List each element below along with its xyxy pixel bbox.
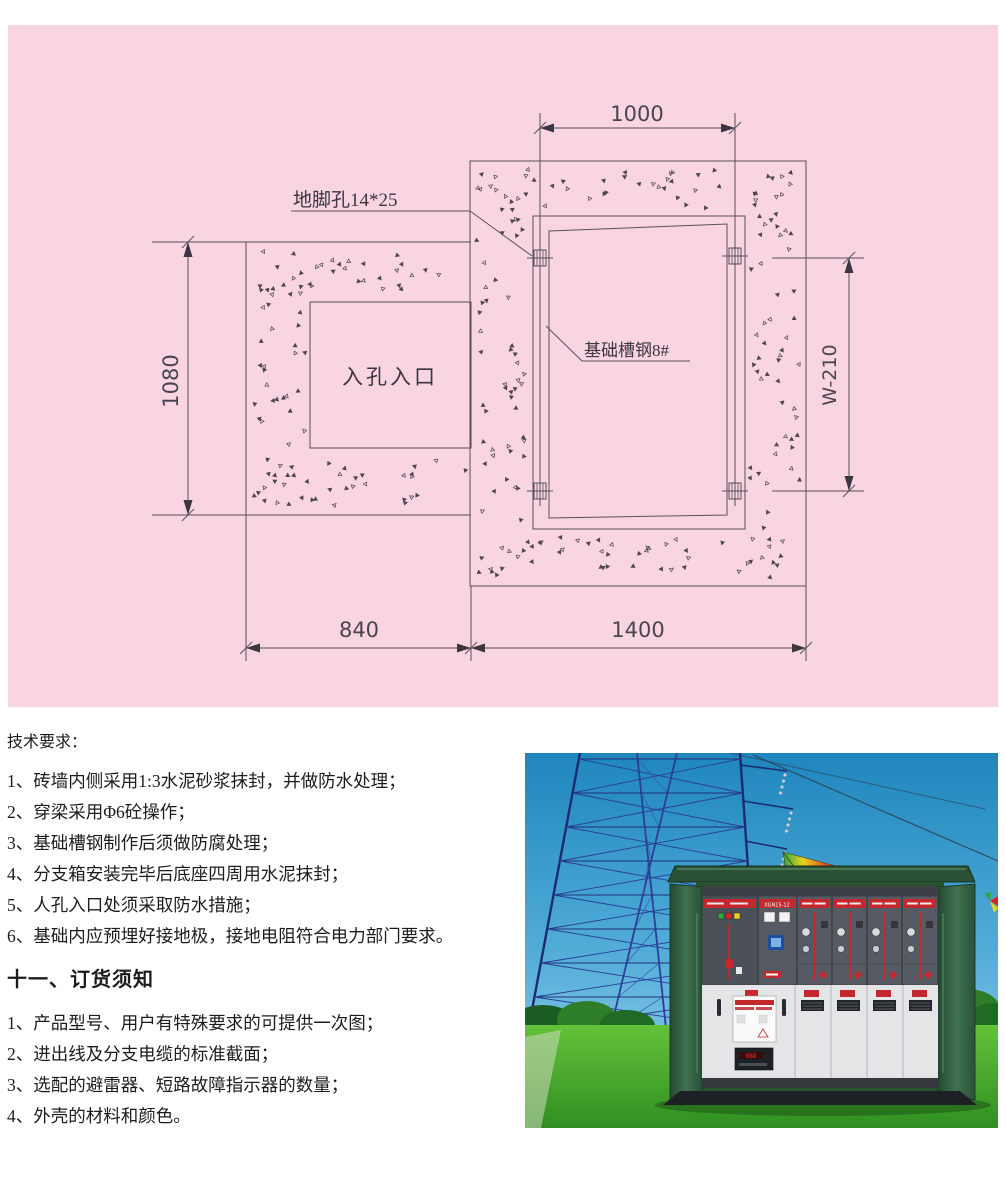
dim-840-label: 840 — [339, 618, 379, 642]
arrowhead — [845, 476, 854, 491]
pit-outline — [533, 216, 745, 529]
tech-requirements-section: 技术要求： 1、砖墙内侧采用1:3水泥砂浆抹封，并做防水处理； 2、穿梁采用Φ6… — [7, 728, 512, 952]
cabinet-model-text: XGN15-12 — [764, 903, 790, 909]
list-item: 1、产品型号、用户有特殊要求的可提供一次图； — [7, 1008, 512, 1039]
svg-text:888: 888 — [746, 1053, 757, 1060]
arrowhead — [845, 258, 854, 273]
list-item: 2、穿梁采用Φ6砼操作； — [7, 797, 512, 828]
foundation-plan-svg: 1000 地脚孔14*25 1080 入孔入口 基础槽钢8# — [8, 25, 998, 707]
list-item: 4、分支箱安装完毕后底座四周用水泥抹封； — [7, 859, 512, 890]
arrowhead — [457, 644, 471, 653]
manhole-label: 入孔入口 — [342, 365, 438, 389]
ordering-notice-title: 十一、订货须知 — [7, 963, 512, 992]
arrowhead — [792, 644, 806, 653]
arrowhead — [721, 124, 735, 133]
anchor-bolts — [527, 241, 748, 506]
ordering-notice-list: 1、产品型号、用户有特殊要求的可提供一次图； 2、进出线及分支电缆的标准截面； … — [7, 1008, 512, 1132]
arrowhead — [246, 644, 260, 653]
list-item: 3、选配的避雷器、短路故障指示器的数量； — [7, 1070, 512, 1101]
switchgear-bays: 888 — [702, 896, 938, 1088]
catalog-page: 1000 地脚孔14*25 1080 入孔入口 基础槽钢8# — [0, 0, 1006, 1181]
arrowhead — [540, 124, 554, 133]
arrowhead — [471, 644, 485, 653]
list-item: 4、外壳的材料和颜色。 — [7, 1101, 512, 1132]
leader-diagonal — [470, 211, 532, 256]
channel-steel-frame — [549, 224, 727, 518]
tech-requirements-title: 技术要求： — [7, 728, 512, 752]
channel-steel-label: 基础槽钢8# — [584, 341, 669, 360]
cabinet-sill — [663, 1091, 977, 1105]
arrowhead — [184, 242, 193, 257]
concrete-stipple-texture — [252, 168, 801, 579]
leader-diagonal — [546, 326, 582, 361]
photo-svg: 888 XGN15-12 — [525, 753, 998, 1128]
cabinet-right-door — [938, 884, 975, 1100]
distribution-cabinet: 888 XGN15-12 — [663, 866, 977, 1105]
product-photo: 888 XGN15-12 — [525, 753, 998, 1128]
tech-requirements-list: 1、砖墙内侧采用1:3水泥砂浆抹封，并做防水处理； 2、穿梁采用Φ6砼操作； 3… — [7, 766, 512, 952]
foundation-drawing-panel: 1000 地脚孔14*25 1080 入孔入口 基础槽钢8# — [8, 25, 998, 707]
anchor-hole-label: 地脚孔14*25 — [293, 189, 398, 211]
arrowhead — [184, 500, 193, 515]
interior-top-shadow — [702, 886, 938, 896]
dim-1400-label: 1400 — [611, 618, 664, 642]
list-item: 3、基础槽钢制作后须做防腐处理； — [7, 828, 512, 859]
ordering-notice-section: 十一、订货须知 1、产品型号、用户有特殊要求的可提供一次图； 2、进出线及分支电… — [7, 963, 512, 1132]
list-item: 5、人孔入口处须采取防水措施； — [7, 890, 512, 921]
list-item: 1、砖墙内侧采用1:3水泥砂浆抹封，并做防水处理； — [7, 766, 512, 797]
dim-1000-label: 1000 — [610, 102, 663, 126]
list-item: 6、基础内应预埋好接地极，接地电阻符合电力部门要求。 — [7, 921, 512, 952]
dim-w210-label: W-210 — [819, 344, 841, 405]
dim-1080-label: 1080 — [159, 354, 183, 407]
list-item: 2、进出线及分支电缆的标准截面； — [7, 1039, 512, 1070]
